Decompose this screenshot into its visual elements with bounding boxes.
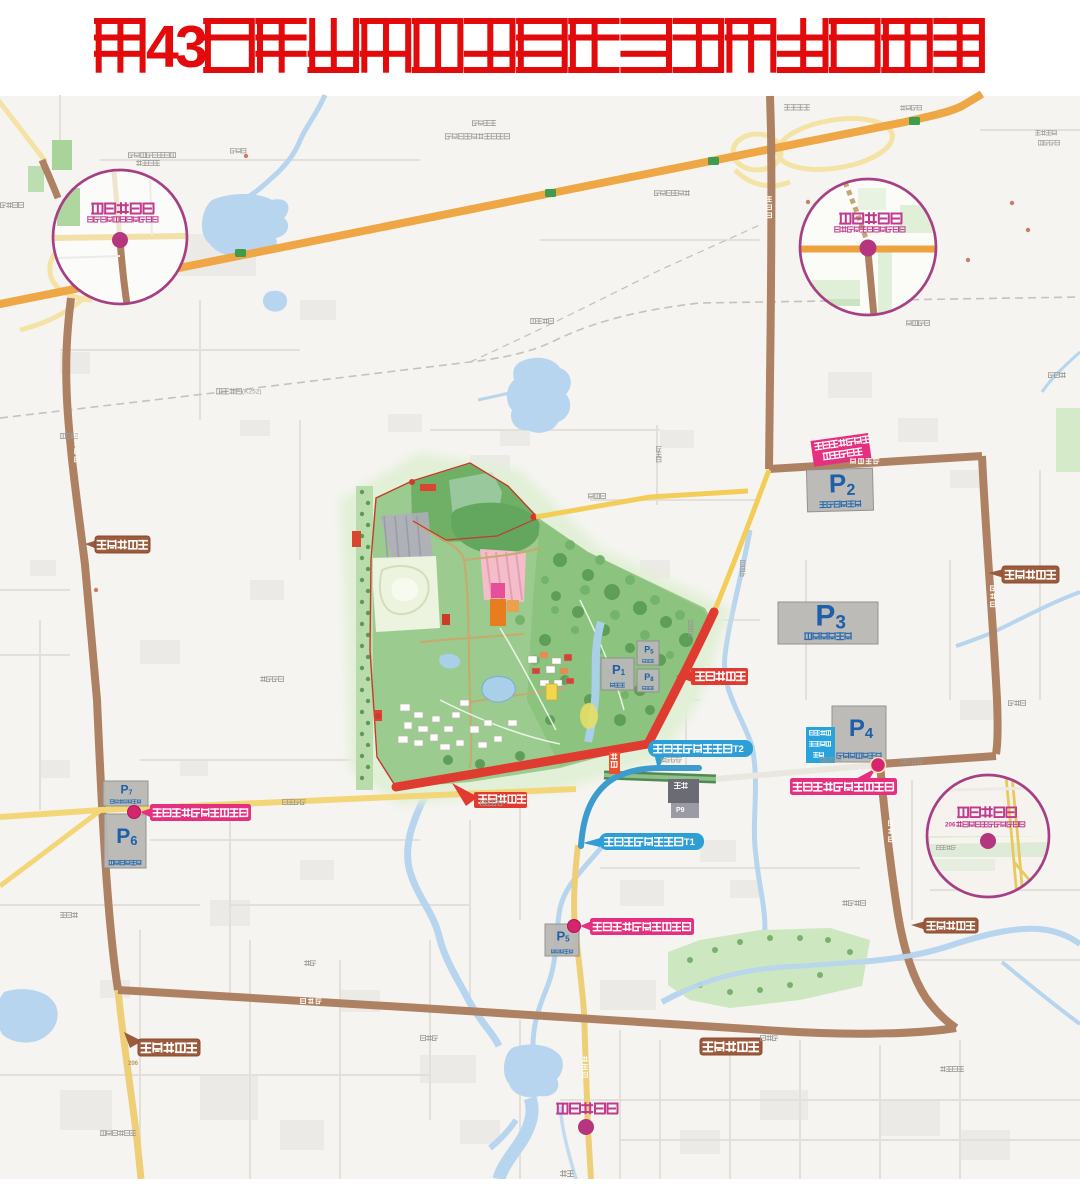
svg-text:T2: T2 [733, 744, 744, 755]
svg-text:3: 3 [175, 14, 208, 80]
svg-text:P9: P9 [676, 807, 685, 814]
svg-text:T1: T1 [684, 837, 696, 848]
svg-text:206: 206 [128, 1061, 139, 1067]
svg-text:(K252): (K252) [242, 389, 262, 396]
svg-text:206: 206 [945, 821, 956, 828]
